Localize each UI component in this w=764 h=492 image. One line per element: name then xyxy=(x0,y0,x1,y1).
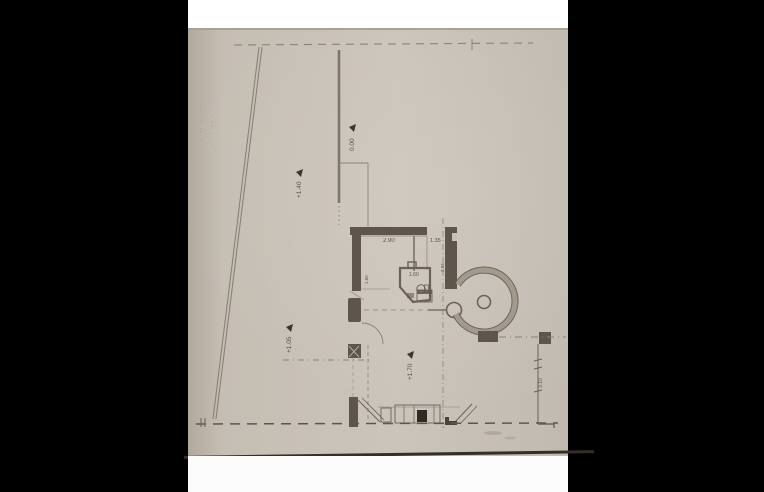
spiral-stair-curved-wall xyxy=(453,267,518,335)
level-zero-label: 0.00 xyxy=(349,138,356,151)
bath-dim-label: 1.60 xyxy=(409,272,419,278)
level-marker-court: +1.05 xyxy=(286,324,293,353)
height-dim-label: 3.10 xyxy=(538,378,544,388)
wall-dim-left-label: 1.65 xyxy=(364,275,369,284)
level-room-label: +1.70 xyxy=(407,363,414,380)
room-dim-1-label: 2.90 xyxy=(383,238,395,244)
floor-plan-drawing: 0.00 +1.40 +1.05 +1.70 xyxy=(188,0,568,492)
site-boundary-line xyxy=(213,47,262,419)
level-court-label: +1.05 xyxy=(286,336,293,353)
margin-note-a: · ·· · ··· xyxy=(198,104,204,140)
bathroom: 1.60 xyxy=(400,262,430,302)
paper-bottom-margin xyxy=(188,456,568,492)
margin-note-b: ·· · ·· · xyxy=(210,113,216,145)
level-marker-zero: 0.00 xyxy=(349,124,356,151)
screenshot-root: 0.00 +1.40 +1.05 +1.70 xyxy=(0,0,764,492)
level-marker-room: +1.70 xyxy=(407,351,414,380)
retaining-wall-line xyxy=(339,50,368,226)
room-dim-2-label: 1.35 xyxy=(430,238,441,244)
stair-center-column xyxy=(478,296,491,309)
top-dashed-property-line xyxy=(234,39,533,50)
level-marker-terrace: +1.40 xyxy=(296,169,303,198)
height-dimension-line: 3.10 xyxy=(534,344,554,428)
level-terrace-label: +1.40 xyxy=(296,181,303,198)
wall-dim-right-label: 2.04 xyxy=(440,263,445,272)
floor-plan-photo: 0.00 +1.40 +1.05 +1.70 xyxy=(188,0,568,492)
ground-dashed-line xyxy=(196,418,558,440)
